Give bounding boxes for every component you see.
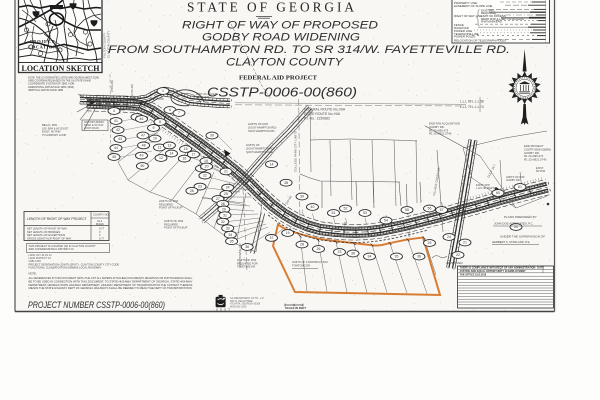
svg-text:EXIST. R/W: EXIST. R/W xyxy=(150,97,164,101)
svg-text:16: 16 xyxy=(182,157,186,161)
svg-text:LENGTH OF RIGHT OF WAY PR: LENGTH OF RIGHT OF WAY PROJECT xyxy=(27,217,87,221)
svg-text:56: 56 xyxy=(428,207,432,211)
svg-text:38: 38 xyxy=(284,181,288,185)
svg-text:52: 52 xyxy=(344,207,348,211)
svg-text:57: 57 xyxy=(440,208,444,212)
svg-text:36: 36 xyxy=(245,245,249,249)
svg-text:21: 21 xyxy=(224,170,228,174)
svg-text:12: 12 xyxy=(159,156,163,160)
svg-text:1: 1 xyxy=(162,89,164,93)
svg-text:54: 54 xyxy=(384,219,388,223)
svg-text:POINT OF PICKUP: POINT OF PICKUP xyxy=(159,206,183,210)
svg-text:LOCATION: LOCATION xyxy=(28,45,57,50)
svg-text:9: 9 xyxy=(153,126,155,130)
svg-text:22: 22 xyxy=(456,253,460,257)
svg-text:14: 14 xyxy=(170,152,174,156)
svg-text:PROJECT NUMBER CSSTP-0006-00(: PROJECT NUMBER CSSTP-0006-00(860) xyxy=(28,300,165,311)
svg-text:48: 48 xyxy=(142,144,146,148)
svg-text:TOMTOMZ DR.: TOMTOMZ DR. xyxy=(292,263,311,267)
svg-text:GROSS LENGTH OF RIGHT OF WAY: GROSS LENGTH OF RIGHT OF WAY xyxy=(27,236,72,240)
svg-text:34: 34 xyxy=(368,255,372,259)
svg-text:SOUTHAMPTON RD.: SOUTHAMPTON RD. xyxy=(246,150,274,154)
svg-text:14: 14 xyxy=(270,162,274,166)
svg-text:L.L.L 79 L.L.L 74: L.L.L 79 L.L.L 74 xyxy=(460,105,484,109)
svg-text:VERTICAL DATUM NAVD 1988: VERTICAL DATUM NAVD 1988 xyxy=(28,88,63,92)
svg-text:0.77: 0.77 xyxy=(99,236,105,240)
svg-text:COLLEGE PARK CITY LIMITS: COLLEGE PARK CITY LIMITS xyxy=(294,131,298,172)
svg-text:20: 20 xyxy=(514,225,518,229)
svg-text:37: 37 xyxy=(270,236,274,240)
svg-text:AND CONGRESSIONAL DISTRICT 13: AND CONGRESSIONAL DISTRICT 13 . xyxy=(29,247,76,251)
svg-text:STATE ROUTE No.:N/A: STATE ROUTE No.:N/A xyxy=(304,112,341,116)
svg-text:SOUTHAMPTON RD.: SOUTHAMPTON RD. xyxy=(248,129,276,133)
svg-text:GODBY ROAD WIDENING: GODBY ROAD WIDENING xyxy=(202,32,361,44)
svg-text:34: 34 xyxy=(228,233,232,237)
svg-text:HERBERT S. ROWLAND, P.E.: HERBERT S. ROWLAND, P.E. xyxy=(492,240,530,244)
svg-text:35: 35 xyxy=(395,255,399,259)
svg-text:LOOP ROAD: LOOP ROAD xyxy=(84,127,99,130)
svg-text:50: 50 xyxy=(140,164,144,168)
svg-text:G D O T: G D O T xyxy=(216,308,231,312)
svg-text:55: 55 xyxy=(405,208,409,212)
svg-text:10: 10 xyxy=(153,137,157,141)
svg-text:RIGHT OF WAY OF PROPOSED: RIGHT OF WAY OF PROPOSED xyxy=(182,20,378,32)
svg-text:24: 24 xyxy=(447,235,451,239)
svg-text:FROM SOUTHAMPTON RD. TO SR 314: FROM SOUTHAMPTON RD. TO SR 314/W. FAYETT… xyxy=(108,44,510,56)
svg-text:STATE OF GEORGIA: STATE OF GEORGIA xyxy=(187,0,357,15)
svg-text:35: 35 xyxy=(230,239,234,243)
svg-text:R1 22+0921.5740: R1 22+0921.5740 xyxy=(524,158,547,162)
svg-text:32: 32 xyxy=(221,220,225,224)
svg-text:31: 31 xyxy=(223,213,227,217)
svg-text:29: 29 xyxy=(222,208,226,212)
svg-text:46: 46 xyxy=(140,117,144,121)
svg-text:21: 21 xyxy=(463,241,467,245)
svg-text:P.I. No.: 2220682: P.I. No.: 2220682 xyxy=(304,116,330,120)
svg-text:27: 27 xyxy=(216,197,220,201)
svg-text:42: 42 xyxy=(116,128,120,132)
svg-text:(404) 631-1000: (404) 631-1000 xyxy=(230,305,247,308)
svg-text:JOHN DOE ASSOCIATES, P.C.: JOHN DOE ASSOCIATES, P.C. xyxy=(494,222,534,226)
svg-text:GODBY RD.: GODBY RD. xyxy=(506,178,521,182)
svg-text:(700+00): (700+00) xyxy=(110,80,114,92)
svg-text:44: 44 xyxy=(114,146,118,150)
svg-text:R1 22+0921.5740: R1 22+0921.5740 xyxy=(429,132,452,136)
svg-text:36: 36 xyxy=(351,252,355,256)
svg-text:125+00: 125+00 xyxy=(407,226,412,237)
svg-text:L & D 40 MARTIN: L & D 40 MARTIN xyxy=(476,186,497,190)
svg-text:BE TO BE USED IN CONNECTION WI: BE TO BE USED IN CONNECTION WITH THIS DO… xyxy=(29,279,193,283)
svg-text:PLANS PREPARED BY: PLANS PREPARED BY xyxy=(504,215,537,219)
svg-text:19: 19 xyxy=(204,159,208,163)
svg-text:25: 25 xyxy=(224,192,228,196)
svg-text:43: 43 xyxy=(118,137,122,141)
svg-text:19: 19 xyxy=(286,231,290,235)
svg-text:60: 60 xyxy=(496,191,500,195)
svg-text:CLAYTON COUNTY: CLAYTON COUNTY xyxy=(226,57,344,69)
svg-text:TOMTOMZ DR.: TOMTOMZ DR. xyxy=(237,265,256,269)
svg-text:4: 4 xyxy=(113,109,115,113)
svg-text:24: 24 xyxy=(226,186,230,190)
svg-text:47: 47 xyxy=(141,134,145,138)
svg-text:ALL REFERENCES IN THIS DOCUMEN: ALL REFERENCES IN THIS DOCUMENT (WITH TH… xyxy=(29,276,193,280)
svg-text:7: 7 xyxy=(178,111,180,115)
svg-text:L.L.L 90: L.L.L 90 xyxy=(90,101,100,105)
svg-text:51: 51 xyxy=(332,211,336,215)
svg-text:LOCATION SKETCH: LOCATION SKETCH xyxy=(22,64,100,73)
svg-text:28: 28 xyxy=(221,202,225,206)
svg-text:25: 25 xyxy=(428,241,432,245)
svg-text:23: 23 xyxy=(338,250,342,254)
svg-text:26: 26 xyxy=(190,189,194,193)
svg-text:THE OFFICE 23.8.2018: THE OFFICE 23.8.2018 xyxy=(460,274,487,277)
svg-text:FEDERAL ROUTE No.:N/A: FEDERAL ROUTE No.:N/A xyxy=(304,108,346,112)
svg-text:28: 28 xyxy=(300,243,304,247)
svg-text:23: 23 xyxy=(198,185,202,189)
svg-text:33: 33 xyxy=(226,226,230,230)
svg-text:11: 11 xyxy=(158,146,162,150)
svg-text:COUNTY NO.: COUNTY NO. xyxy=(93,213,110,217)
svg-text:22: 22 xyxy=(203,174,207,178)
svg-text:41: 41 xyxy=(114,119,118,123)
svg-text:PROJECT: PROJECT xyxy=(30,39,55,44)
svg-text:15: 15 xyxy=(184,147,188,151)
svg-text:REQD R/W: REQD R/W xyxy=(196,95,210,99)
svg-text:61: 61 xyxy=(518,185,522,189)
svg-text:UNDER THE SUPERVISION OF: UNDER THE SUPERVISION OF xyxy=(500,235,545,239)
svg-text:FUNCTIONAL CLASSIFICATION (URB: FUNCTIONAL CLASSIFICATION (URBAN) LOCAL … xyxy=(29,266,102,270)
svg-text:30: 30 xyxy=(210,134,214,138)
svg-text:R/W MARKERS: R/W MARKERS xyxy=(481,20,502,24)
svg-text:GMD 1349: GMD 1349 xyxy=(29,260,42,263)
svg-text:20: 20 xyxy=(205,165,209,169)
svg-text:6: 6 xyxy=(169,108,171,112)
svg-text:MEANS THE STATE HIGHWAY DEPT O: MEANS THE STATE HIGHWAY DEPT OF GEORGIA … xyxy=(29,286,193,290)
svg-text:45: 45 xyxy=(112,155,116,159)
svg-text:TO AIRPORT LOOP: TO AIRPORT LOOP xyxy=(42,133,67,137)
svg-text:POINT OF PICKUP: POINT OF PICKUP xyxy=(164,226,188,230)
svg-text:L.L.L 99 L.L.L 58: L.L.L 99 L.L.L 58 xyxy=(460,100,484,104)
svg-text:49: 49 xyxy=(140,154,144,158)
svg-text:8: 8 xyxy=(159,120,161,124)
svg-text:60' R/W: 60' R/W xyxy=(536,169,546,173)
svg-text:17: 17 xyxy=(191,153,195,157)
svg-text:40: 40 xyxy=(311,205,315,209)
svg-text:APPROVED: APPROVED xyxy=(446,261,464,265)
svg-text:36: 36 xyxy=(417,255,421,259)
svg-text:CSSTP-0006-00(860): CSSTP-0006-00(860) xyxy=(207,86,357,100)
svg-text:53: 53 xyxy=(363,211,367,215)
svg-text:39: 39 xyxy=(300,195,304,199)
svg-text:(170+00): (170+00) xyxy=(130,84,134,96)
svg-text:RELOCATION OF TELEGRAPH POLES: RELOCATION OF TELEGRAPH POLES xyxy=(454,38,506,42)
svg-text:NOTE:: NOTE: xyxy=(29,272,37,276)
svg-text:26: 26 xyxy=(317,247,321,251)
svg-text:SCALE IN FEET: SCALE IN FEET xyxy=(285,306,306,310)
svg-text:FEDERAL AID PROJECT: FEDERAL AID PROJECT xyxy=(239,75,318,82)
svg-text:DEPARTMENT, GEORGIA STATE HIGH: DEPARTMENT, GEORGIA STATE HIGHWAY DEPART… xyxy=(29,283,193,287)
svg-text:MILES: MILES xyxy=(96,222,104,226)
svg-text:13: 13 xyxy=(167,144,171,148)
